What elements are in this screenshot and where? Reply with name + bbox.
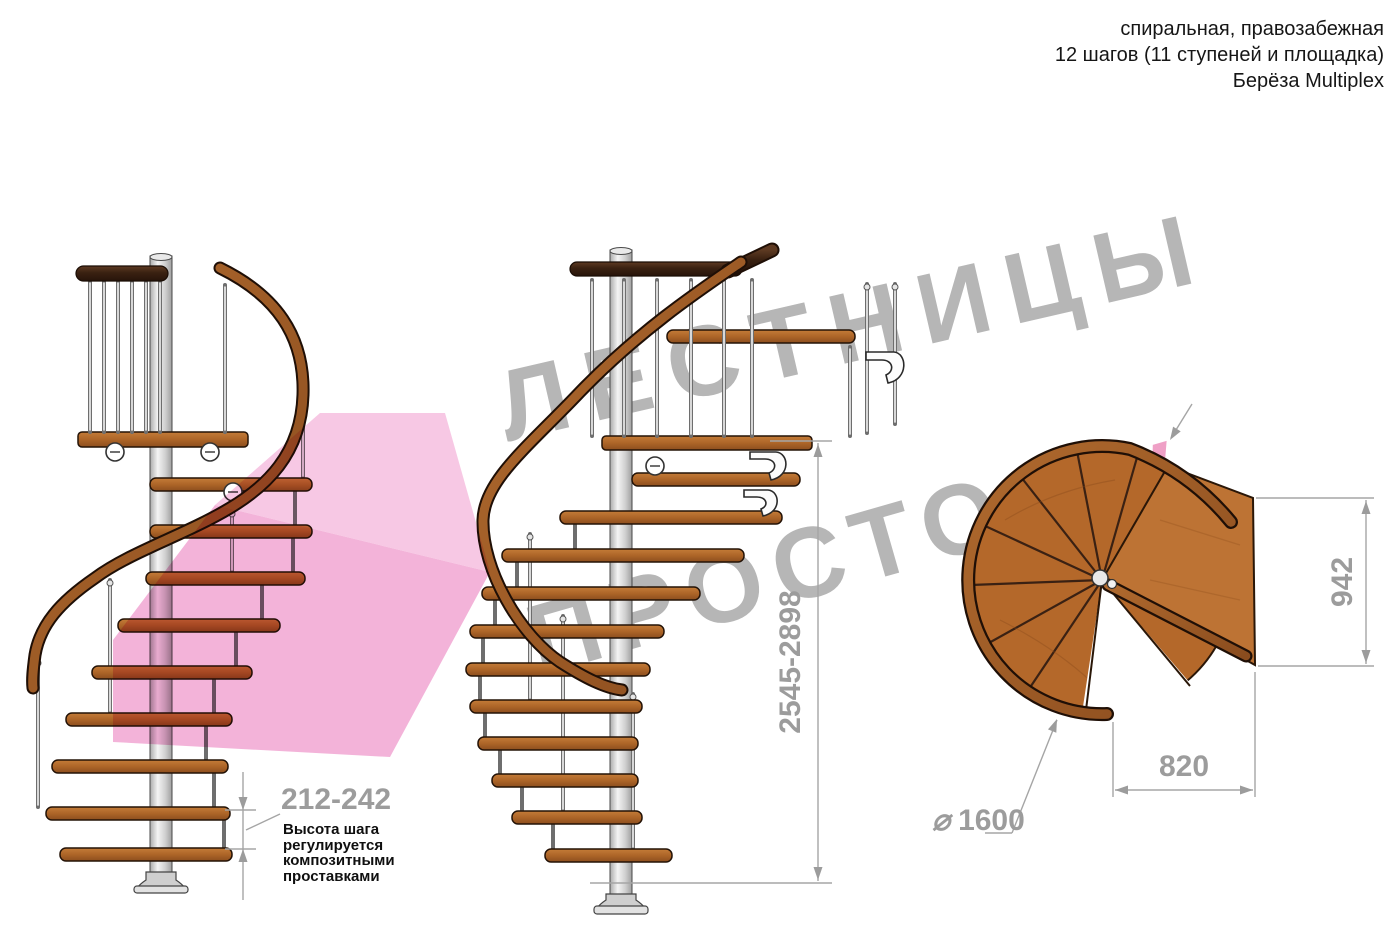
- diameter-symbol: ⌀: [932, 804, 954, 837]
- title-line-material: Берёза Multiplex: [1055, 68, 1384, 94]
- note-line: проставками: [283, 869, 395, 885]
- wall-brackets: [744, 352, 904, 516]
- plan-pole-knob: [1108, 580, 1117, 589]
- landing-platform: [602, 436, 812, 450]
- title-line-steps: 12 шагов (11 ступеней и площадка): [1055, 42, 1384, 68]
- dim-total-height-value: 2545-2898: [774, 590, 807, 733]
- step: [92, 666, 252, 679]
- dim-step-height-value: 212-242: [281, 783, 391, 816]
- staircase-drawing-canvas: 212-242 2545-2898 942 820: [0, 0, 1400, 947]
- note-line: композитными: [283, 853, 395, 869]
- dim-landing-width-value: 820: [1159, 750, 1209, 783]
- title-line-type: спиральная, правозабежная: [1055, 16, 1384, 42]
- step: [492, 774, 638, 787]
- landing-platform: [78, 432, 248, 447]
- note-line: регулируется: [283, 838, 395, 854]
- dim-diameter-value: ⌀1600: [932, 804, 1025, 837]
- step: [512, 811, 642, 824]
- plan-view: [968, 446, 1255, 740]
- step: [146, 572, 305, 585]
- pole-cap: [610, 248, 632, 255]
- step: [545, 849, 672, 862]
- step: [478, 737, 638, 750]
- dim-landing-depth-value: 942: [1326, 557, 1359, 607]
- landing-handrail-dark: [76, 266, 168, 281]
- step: [60, 848, 232, 861]
- step: [46, 807, 230, 820]
- step: [560, 511, 782, 524]
- mounting-discs: [106, 443, 242, 501]
- title-block: спиральная, правозабежная 12 шагов (11 с…: [1055, 16, 1384, 94]
- step: [470, 700, 642, 713]
- step-height-note: Высота шага регулируется композитными пр…: [283, 822, 395, 884]
- step: [667, 330, 855, 343]
- step: [470, 625, 664, 638]
- pole-base: [594, 894, 648, 914]
- plan-center-pole: [1092, 570, 1108, 586]
- left-elevation-view: [33, 254, 312, 894]
- pole-cap: [150, 254, 172, 261]
- dim-landing-depth: 942: [1256, 498, 1374, 666]
- front-elevation-view: [466, 248, 904, 915]
- step: [118, 619, 280, 632]
- step: [502, 549, 744, 562]
- pole-base: [134, 872, 188, 893]
- note-line: Высота шага: [283, 822, 395, 838]
- step: [66, 713, 232, 726]
- spiral-staircase-drawing-sheet: ЛЕСТНИЦЫ ПРОСТО.ру: [0, 0, 1400, 947]
- step: [52, 760, 228, 773]
- step: [482, 587, 700, 600]
